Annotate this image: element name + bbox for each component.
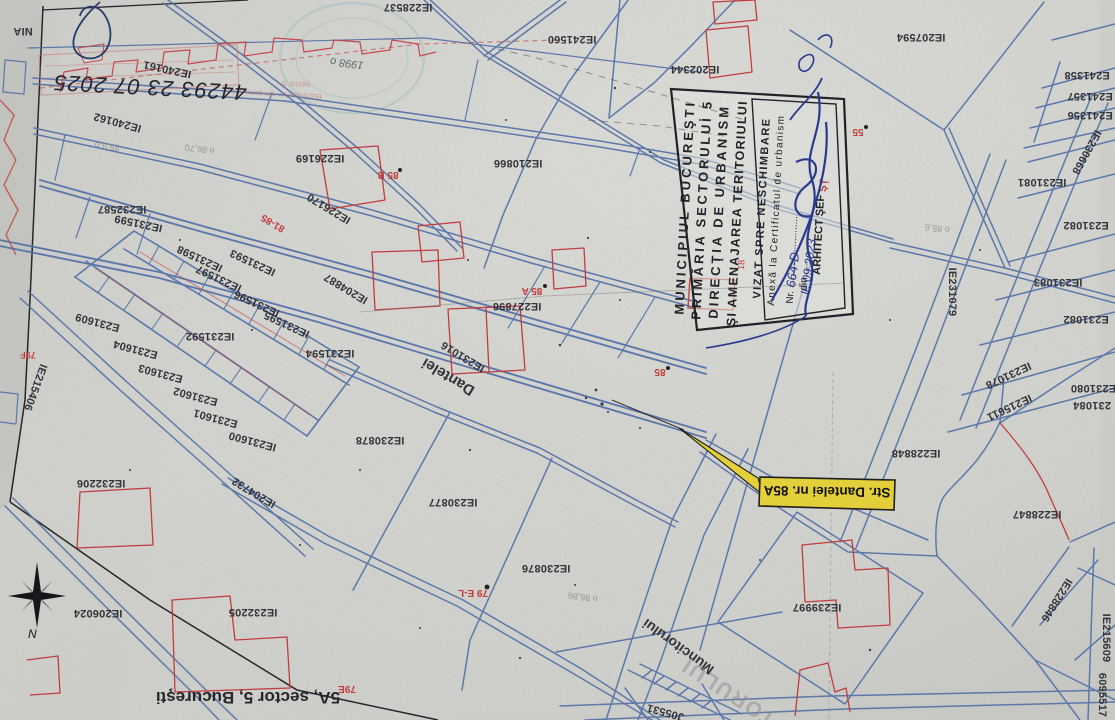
svg-text:IE231080: IE231080	[1071, 382, 1115, 394]
svg-text:Str. Dantelei nr. 85A: Str. Dantelei nr. 85A	[763, 483, 890, 500]
svg-text:IE202344: IE202344	[670, 63, 719, 75]
svg-text:231084: 231084	[1072, 399, 1111, 411]
svg-text:IE215609: IE215609	[1100, 614, 1112, 663]
svg-text:IE231594: IE231594	[305, 347, 354, 359]
svg-text:6095517: 6095517	[1096, 673, 1108, 717]
svg-text:IE232205: IE232205	[229, 606, 278, 618]
svg-text:E241357: E241357	[1067, 90, 1112, 102]
svg-text:IE230878: IE230878	[356, 434, 405, 446]
svg-text:79E: 79E	[338, 683, 356, 694]
svg-text:IE228848: IE228848	[892, 447, 941, 459]
svg-text:IE232206: IE232206	[77, 477, 126, 489]
svg-text:E231082: E231082	[1063, 219, 1108, 231]
svg-text:18: 18	[736, 260, 747, 271]
svg-text:IE228537: IE228537	[384, 1, 433, 13]
svg-text:IE210866: IE210866	[494, 157, 543, 169]
svg-text:79 E-L: 79 E-L	[458, 587, 488, 598]
svg-text:85 B: 85 B	[377, 169, 398, 180]
svg-text:IE227896: IE227896	[493, 300, 542, 312]
svg-text:85 A: 85 A	[522, 285, 543, 296]
svg-text:85: 85	[654, 366, 666, 377]
svg-text:5A, sector 5, Bucureşti: 5A, sector 5, Bucureşti	[156, 688, 340, 707]
svg-text:IE239997: IE239997	[793, 601, 842, 613]
svg-text:IE228847: IE228847	[1013, 508, 1062, 520]
svg-text:IE231592: IE231592	[186, 330, 235, 342]
svg-text:N: N	[28, 627, 37, 641]
svg-text:IE226169: IE226169	[296, 152, 345, 164]
svg-text:NIA: NIA	[13, 25, 33, 37]
svg-text:IE230877: IE230877	[429, 496, 478, 508]
svg-text:E241358: E241358	[1064, 69, 1109, 81]
svg-text:IE231081: IE231081	[1018, 176, 1067, 188]
svg-text:IE207594: IE207594	[896, 31, 945, 43]
svg-text:IE231083: IE231083	[1034, 276, 1083, 288]
svg-text:IE206024: IE206024	[73, 607, 122, 619]
svg-text:IE232587: IE232587	[98, 203, 147, 215]
svg-text:IE231079: IE231079	[946, 268, 958, 317]
svg-text:79F: 79F	[20, 350, 36, 360]
svg-text:E241356: E241356	[1067, 109, 1112, 121]
svg-text:IE230876: IE230876	[522, 562, 571, 574]
svg-text:E231082: E231082	[1063, 313, 1108, 325]
svg-text:55: 55	[852, 126, 864, 137]
svg-text:IE241560: IE241560	[548, 33, 597, 45]
